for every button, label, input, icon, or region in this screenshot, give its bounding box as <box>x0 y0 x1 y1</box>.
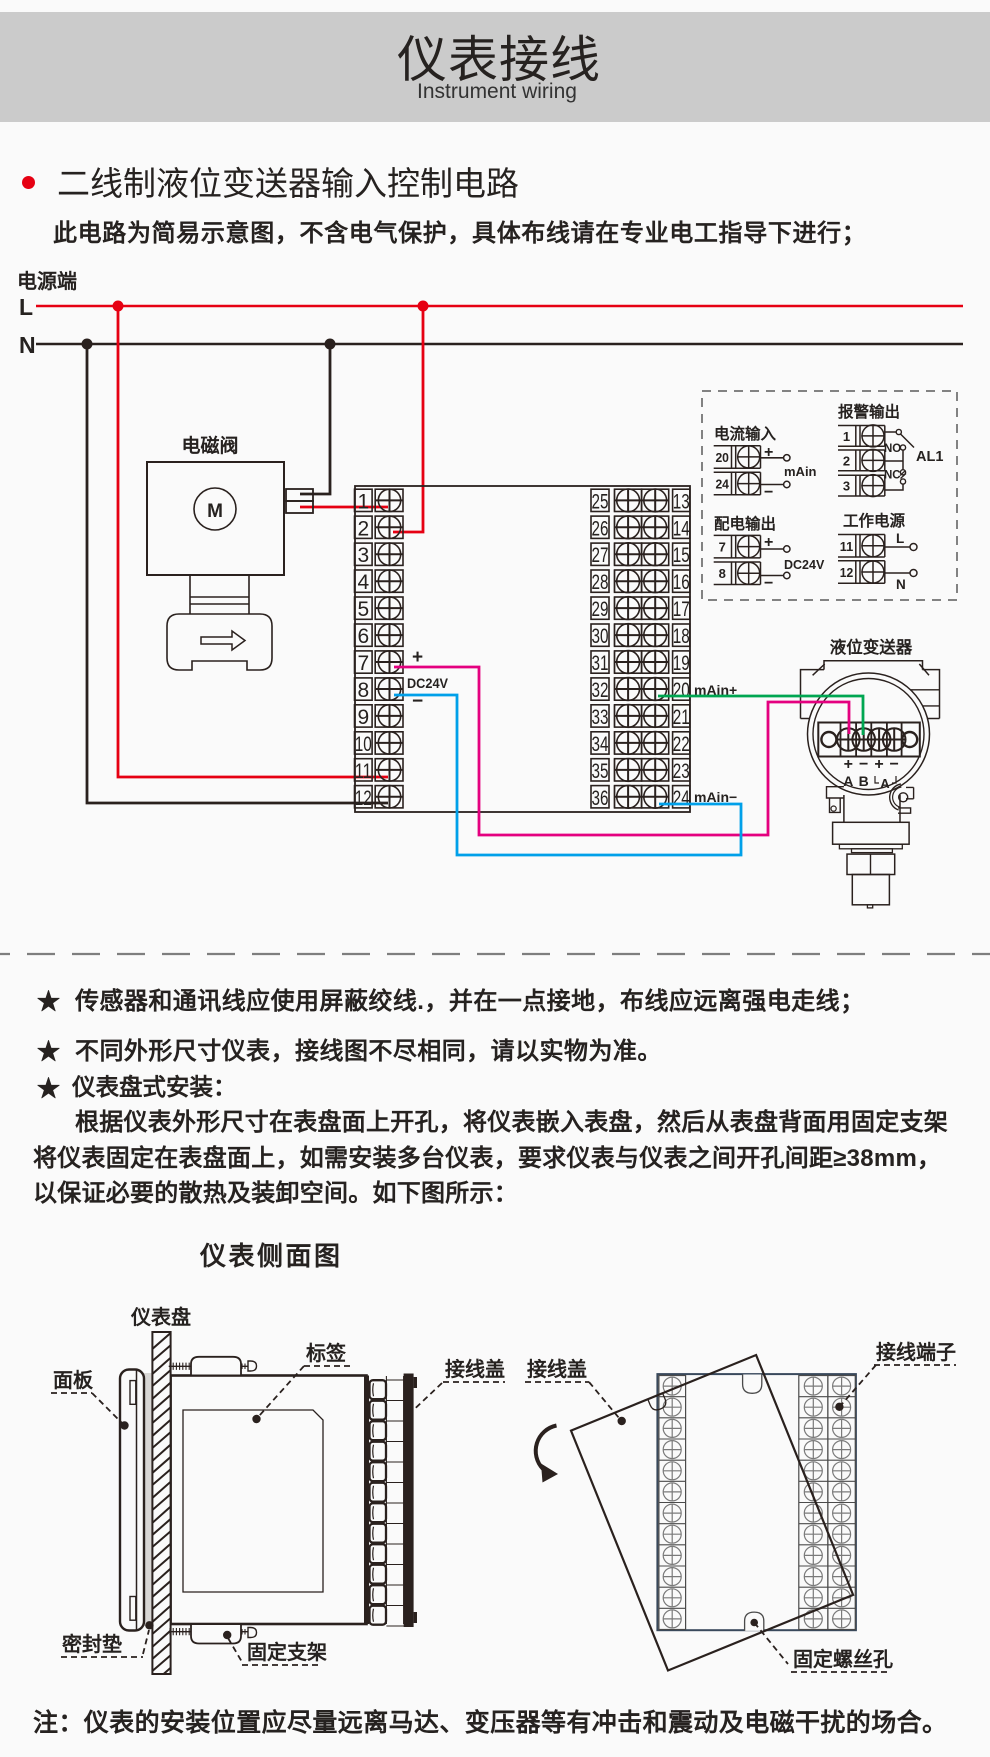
svg-text:L: L <box>19 294 33 320</box>
svg-text:工作电源: 工作电源 <box>843 511 906 530</box>
svg-text:电磁阀: 电磁阀 <box>181 434 238 457</box>
svg-text:+: + <box>412 647 423 668</box>
svg-text:接线盖: 接线盖 <box>527 1357 587 1381</box>
svg-text:22: 22 <box>673 733 690 756</box>
svg-text:28: 28 <box>592 571 609 594</box>
svg-text:固定支架: 固定支架 <box>247 1640 327 1664</box>
svg-text:1: 1 <box>843 429 850 444</box>
svg-text:17: 17 <box>673 598 690 621</box>
svg-text:25: 25 <box>592 490 609 513</box>
svg-text:20: 20 <box>715 450 729 465</box>
svg-text:16: 16 <box>673 571 690 594</box>
svg-text:DC24V: DC24V <box>407 675 449 691</box>
svg-text:接线盖: 接线盖 <box>445 1357 505 1381</box>
svg-text:24: 24 <box>715 477 729 492</box>
svg-text:仪表盘: 仪表盘 <box>130 1305 191 1329</box>
svg-text:31: 31 <box>592 652 609 675</box>
svg-text:23: 23 <box>673 760 690 783</box>
svg-text:36: 36 <box>592 787 609 810</box>
svg-text:34: 34 <box>592 733 609 756</box>
svg-text:−: − <box>764 575 773 592</box>
svg-text:29: 29 <box>592 598 609 621</box>
svg-text:5: 5 <box>357 598 369 621</box>
svg-text:12: 12 <box>840 565 854 580</box>
svg-text:电源端: 电源端 <box>17 270 77 293</box>
svg-text:N: N <box>19 332 36 358</box>
svg-text:−: − <box>859 756 868 773</box>
svg-text:19: 19 <box>673 652 690 675</box>
svg-text:报警输出: 报警输出 <box>838 402 900 421</box>
svg-text:A: A <box>843 773 853 789</box>
svg-text:L: L <box>896 531 904 546</box>
svg-text:DC24V: DC24V <box>784 558 825 572</box>
svg-text:11: 11 <box>840 539 854 554</box>
svg-text:N: N <box>896 577 906 592</box>
svg-text:液位变送器: 液位变送器 <box>830 637 913 657</box>
svg-text:27: 27 <box>592 544 609 567</box>
svg-text:3: 3 <box>843 479 850 494</box>
svg-text:mAin: mAin <box>784 464 817 479</box>
svg-text:M: M <box>207 501 223 522</box>
svg-text:密封垫: 密封垫 <box>62 1632 122 1656</box>
svg-text:4: 4 <box>357 571 369 594</box>
svg-text:26: 26 <box>592 517 609 540</box>
svg-text:固定螺丝孔: 固定螺丝孔 <box>793 1647 893 1671</box>
svg-text:21: 21 <box>673 706 690 729</box>
svg-text:面板: 面板 <box>53 1368 94 1392</box>
svg-text:+: + <box>874 756 883 773</box>
svg-text:9: 9 <box>357 706 369 729</box>
svg-text:NO: NO <box>884 443 901 455</box>
svg-text:20: 20 <box>673 679 690 702</box>
svg-text:32: 32 <box>592 679 609 702</box>
svg-text:10: 10 <box>355 733 372 756</box>
svg-text:3: 3 <box>357 544 369 567</box>
svg-text:13: 13 <box>673 490 690 513</box>
svg-text:12: 12 <box>355 787 372 810</box>
svg-text:1: 1 <box>357 490 369 513</box>
svg-text:−: − <box>890 756 899 773</box>
svg-text:2: 2 <box>843 453 850 468</box>
svg-text:7: 7 <box>357 652 369 675</box>
svg-text:8: 8 <box>357 679 369 702</box>
svg-text:30: 30 <box>592 625 609 648</box>
svg-text:B: B <box>859 773 869 789</box>
svg-text:6: 6 <box>357 625 369 648</box>
svg-text:15: 15 <box>673 544 690 567</box>
svg-text:+: + <box>844 756 853 773</box>
svg-text:−: − <box>764 484 773 501</box>
svg-text:标签: 标签 <box>306 1341 347 1365</box>
svg-text:2: 2 <box>357 517 369 540</box>
svg-text:电流输入: 电流输入 <box>714 424 777 443</box>
svg-text:11: 11 <box>355 760 372 783</box>
svg-text:配电输出: 配电输出 <box>714 514 776 533</box>
svg-text:35: 35 <box>592 760 609 783</box>
svg-text:24: 24 <box>673 787 690 810</box>
svg-text:8: 8 <box>719 566 726 581</box>
svg-text:NC: NC <box>884 470 901 482</box>
svg-text:18: 18 <box>673 625 690 648</box>
svg-text:7: 7 <box>719 540 726 555</box>
svg-text:33: 33 <box>592 706 609 729</box>
svg-text:接线端子: 接线端子 <box>876 1340 956 1364</box>
svg-text:A: A <box>880 776 890 791</box>
svg-text:AL1: AL1 <box>916 449 943 465</box>
svg-text:14: 14 <box>673 517 690 540</box>
